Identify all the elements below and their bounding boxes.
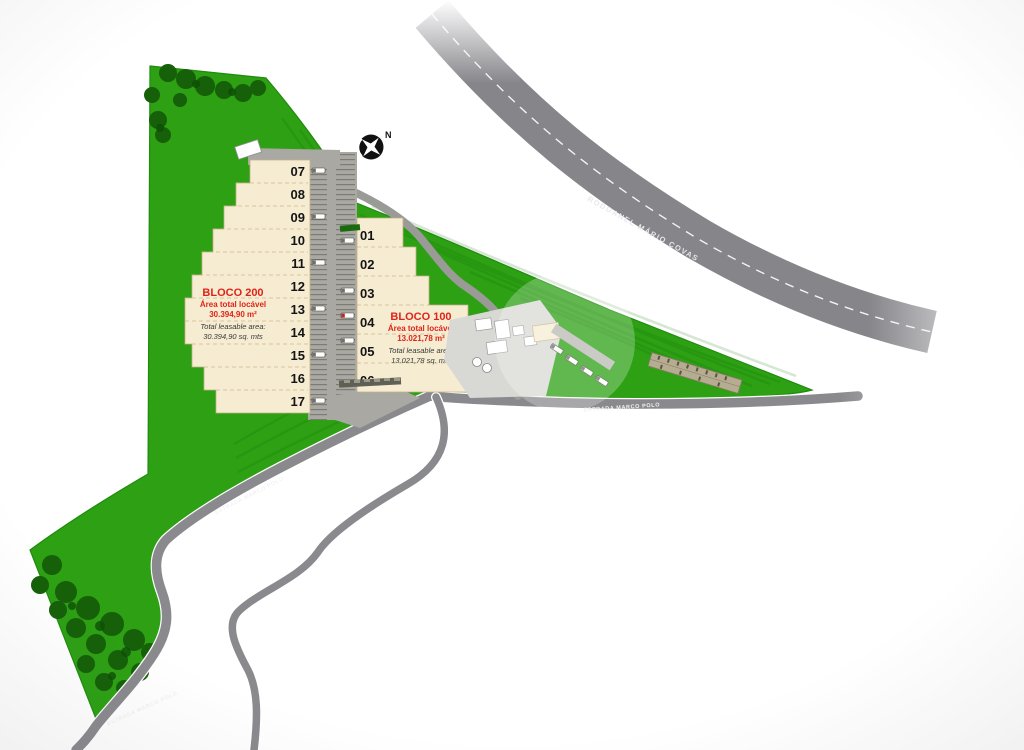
site-plan-page: 07 08 09 10 11 12 13 14 15 16 17 BLOCO 2… [0,0,1024,750]
photo-vignette [0,0,1024,750]
site-plan-svg: 07 08 09 10 11 12 13 14 15 16 17 BLOCO 2… [0,0,1024,750]
